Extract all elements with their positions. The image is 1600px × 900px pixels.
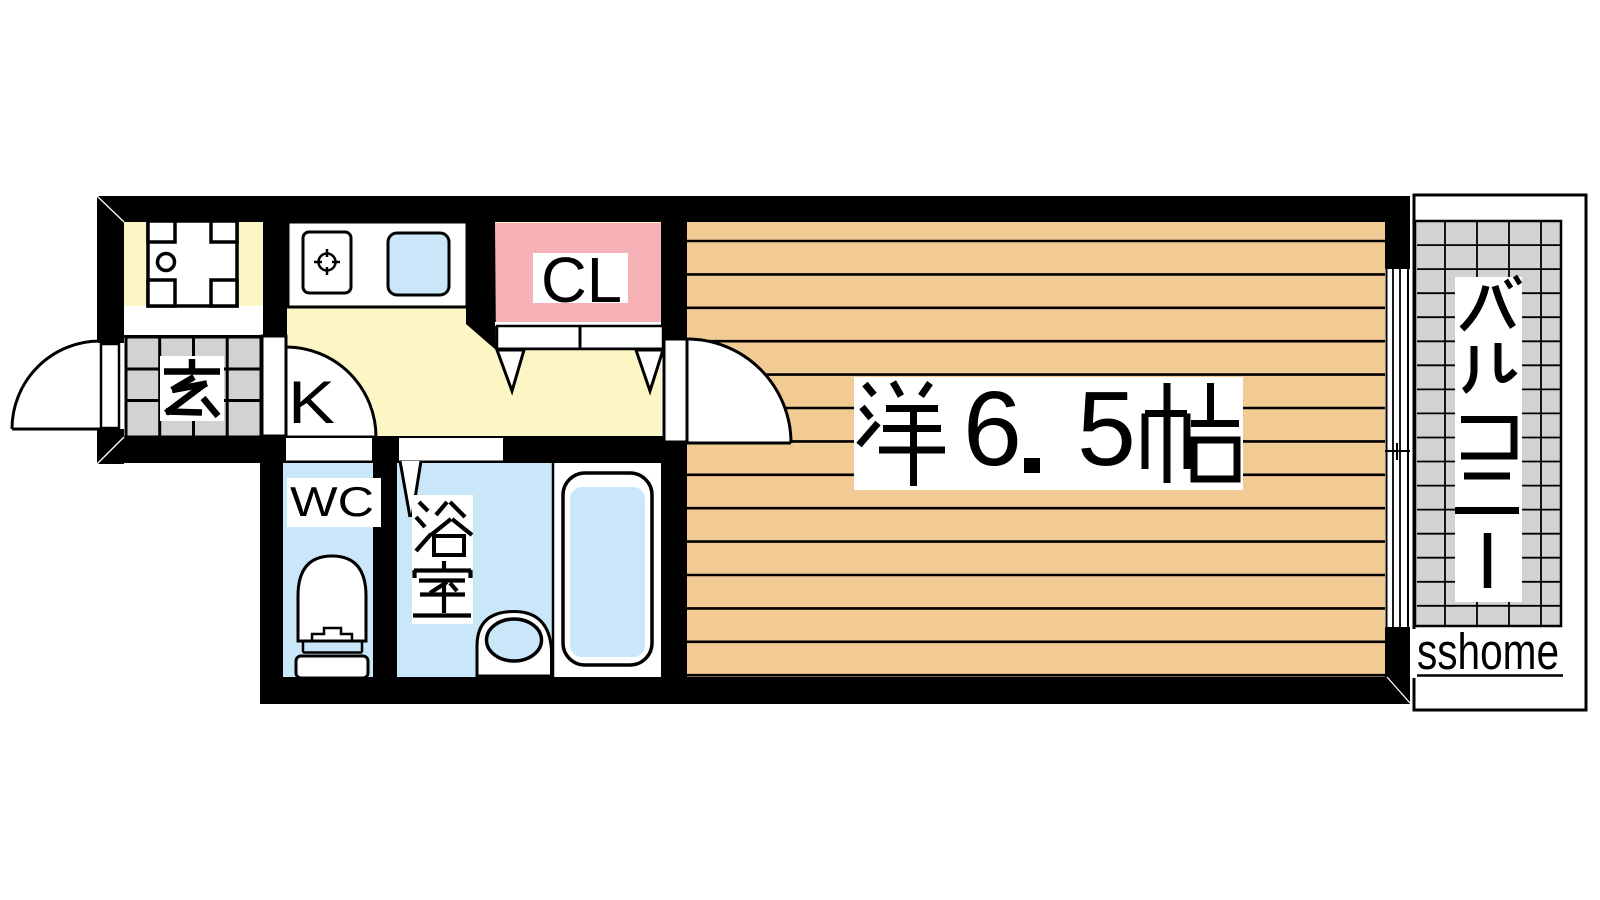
svg-text:WC: WC bbox=[290, 478, 374, 525]
svg-text:5: 5 bbox=[1077, 370, 1136, 488]
svg-text:CL: CL bbox=[541, 244, 622, 316]
svg-text:sshome: sshome bbox=[1417, 623, 1559, 680]
svg-text:6: 6 bbox=[963, 370, 1022, 488]
svg-text:K: K bbox=[288, 369, 335, 436]
